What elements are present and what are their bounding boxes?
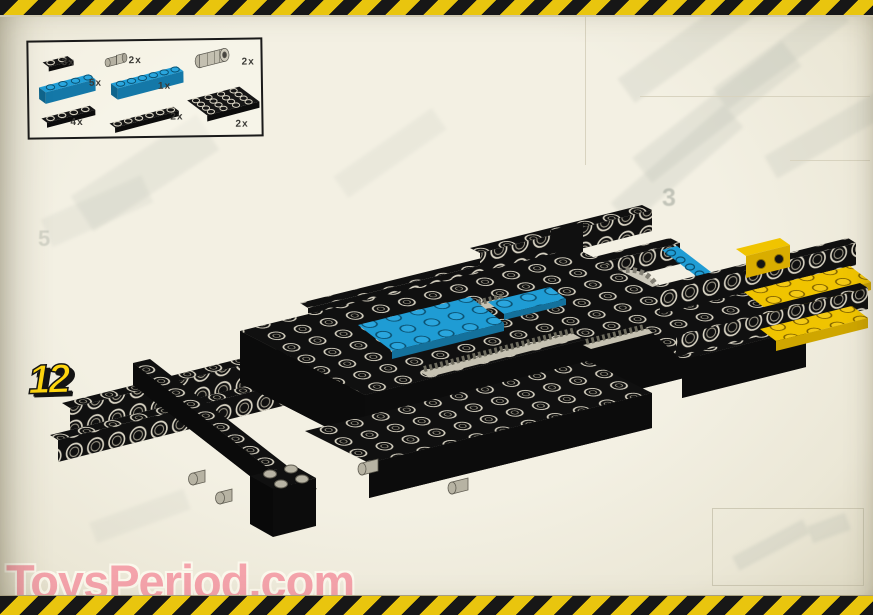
- part-quantity: 2x: [170, 111, 183, 122]
- parts-thumbnails: [28, 39, 261, 137]
- parts-callout-box: 3x 2x 2x 5x 1x 4x 2x 2x: [26, 37, 263, 139]
- part-quantity: 2x: [242, 56, 255, 67]
- part-quantity: 3x: [62, 57, 75, 68]
- part-quantity: 5x: [89, 78, 102, 89]
- part-gray-driving-ring: [195, 48, 229, 67]
- part-blue-brick-1x4: [39, 74, 96, 104]
- scanned-instruction-page: 3 5: [0, 0, 873, 615]
- part-black-plate-1x6: [109, 107, 179, 133]
- part-quantity: 2x: [235, 119, 248, 130]
- part-quantity: 2x: [129, 55, 142, 66]
- gray-connector-pegs: [189, 470, 233, 504]
- part-black-plate-4x4: [187, 86, 260, 121]
- part-quantity: 4x: [70, 117, 83, 128]
- hazard-stripe-border-top: [0, 0, 873, 17]
- part-quantity: 1x: [158, 81, 171, 92]
- part-blue-brick-1x6: [111, 66, 184, 100]
- hazard-stripe-border-bottom: [0, 595, 873, 615]
- part-black-plate-1x4: [41, 106, 95, 128]
- step-number: 12: [27, 355, 68, 403]
- part-gray-connector-peg: [105, 53, 127, 67]
